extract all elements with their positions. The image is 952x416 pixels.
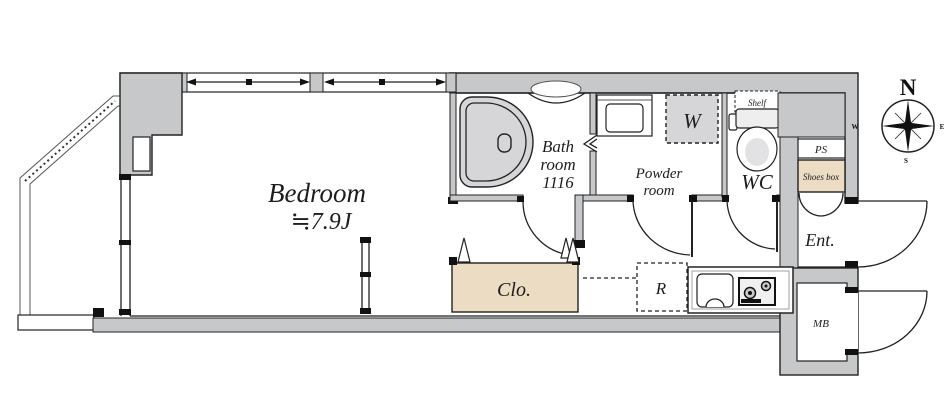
fridge-space: R [637,263,687,311]
front-door [845,197,927,268]
pipe-space: PS [798,139,845,158]
sink-icon [697,274,733,307]
floor-plan-page: Bedroom ≒7.9J [0,0,952,416]
powder-room-label-2: room [643,183,674,199]
ps-label: PS [814,144,828,156]
bathtub-icon [460,97,533,187]
bath-sink-icon [528,81,585,103]
stove-icon [739,278,775,305]
balcony-window [119,174,131,316]
corner-pillar [120,73,182,175]
powder-room-label-1: Powder [635,166,683,182]
compass-s-label: S [904,157,908,165]
entrance-label: Ent. [804,230,835,250]
partition-window [360,237,371,314]
meter-box-label: MB [812,318,829,330]
shelf-label: Shelf [748,98,767,108]
kitchen-area: R [583,263,793,313]
wc-door [722,195,780,252]
bathroom-area: Bath room 1116 [448,81,597,258]
bedroom-label: Bedroom [268,178,366,208]
compass-icon: N W E S [852,75,945,165]
folding-door-icon [584,135,597,152]
washer-space: W [666,95,718,143]
fridge-label: R [655,279,667,298]
toilet-icon [729,109,779,171]
bedroom-size-label: ≒7.9J [291,209,353,235]
shoes-box: Shoes box [798,160,845,192]
shoes-box-doors [799,193,843,216]
compass-n-label: N [900,75,917,100]
kitchen-counter [688,267,793,313]
meter-box-door [858,291,927,353]
washbasin-icon [597,95,652,136]
balcony [18,96,122,330]
bathroom-label-2: room [540,155,575,174]
meter-box: MB [780,268,927,375]
bedroom-area: Bedroom ≒7.9J [119,174,371,316]
floor-plan: Bedroom ≒7.9J [0,0,952,416]
washer-label: W [683,109,703,133]
balcony-sill [18,315,94,330]
closet-area: Clo. [449,238,580,312]
compass-w-label: W [852,123,859,131]
wc-label: WC [741,170,773,194]
powder-room-area: W Powder room [583,95,727,257]
powder-room-door [627,195,697,257]
bathroom-label-3: 1116 [542,173,574,192]
shoes-box-label: Shoes box [803,172,839,182]
closet-label: Clo. [497,279,531,301]
compass-e-label: E [940,123,945,131]
bathroom-label-1: Bath [542,137,574,156]
